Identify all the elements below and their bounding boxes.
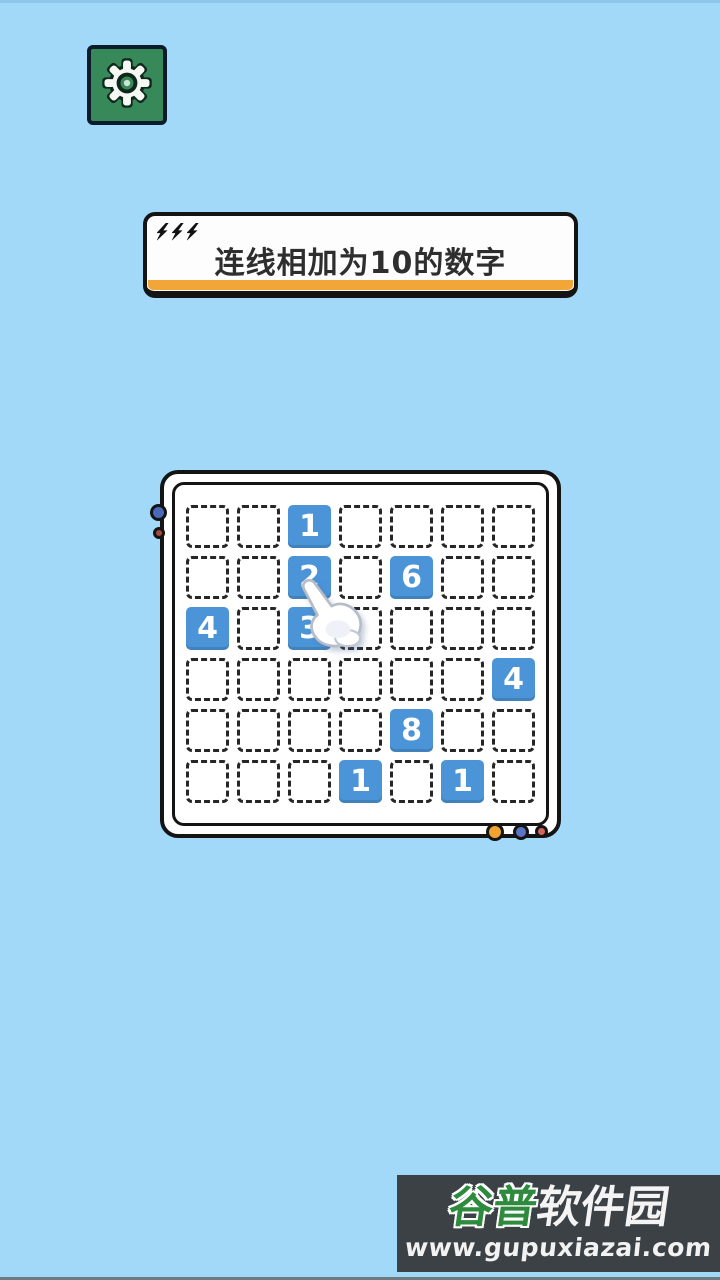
game-screen: 连线相加为10的数字 126434811 谷普软件园 www.gupuxiaza… <box>0 0 720 1280</box>
empty-cell <box>441 658 484 701</box>
empty-cell <box>237 760 280 803</box>
banner-accent-bar <box>148 280 573 290</box>
empty-cell <box>390 607 433 650</box>
empty-cell <box>390 505 433 548</box>
number-tile[interactable]: 1 <box>441 760 484 803</box>
board-frame: 126434811 <box>172 482 549 826</box>
puzzle-grid: 126434811 <box>186 505 535 803</box>
empty-cell <box>339 505 382 548</box>
empty-cell <box>186 709 229 752</box>
watermark-brand-green: 谷普 <box>445 1182 540 1233</box>
empty-cell <box>339 607 382 650</box>
empty-cell <box>288 658 331 701</box>
watermark-url: www.gupuxiazai.com <box>404 1233 714 1262</box>
number-tile[interactable]: 3 <box>288 607 331 650</box>
number-tile[interactable]: 1 <box>339 760 382 803</box>
empty-cell <box>390 658 433 701</box>
empty-cell <box>237 607 280 650</box>
empty-cell <box>186 658 229 701</box>
empty-cell <box>441 607 484 650</box>
number-tile[interactable]: 2 <box>288 556 331 599</box>
gear-icon <box>100 56 154 114</box>
watermark-brand-white: 软件园 <box>533 1182 672 1233</box>
empty-cell <box>186 760 229 803</box>
empty-cell <box>492 709 535 752</box>
number-tile[interactable]: 4 <box>186 607 229 650</box>
number-tile[interactable]: 4 <box>492 658 535 701</box>
decor-dot-blue <box>150 504 167 521</box>
empty-cell <box>492 760 535 803</box>
empty-cell <box>441 709 484 752</box>
settings-button[interactable] <box>87 45 167 125</box>
empty-cell <box>441 505 484 548</box>
empty-cell <box>441 556 484 599</box>
watermark: 谷普软件园 www.gupuxiazai.com <box>397 1175 720 1272</box>
number-tile[interactable]: 1 <box>288 505 331 548</box>
empty-cell <box>288 709 331 752</box>
level-goal-title: 连线相加为10的数字 <box>147 238 574 282</box>
empty-cell <box>390 760 433 803</box>
empty-cell <box>492 505 535 548</box>
level-banner: 连线相加为10的数字 <box>143 212 578 298</box>
empty-cell <box>186 505 229 548</box>
empty-cell <box>237 658 280 701</box>
empty-cell <box>237 556 280 599</box>
decor-dot-red <box>535 825 548 838</box>
decor-dot-orange <box>486 823 504 841</box>
watermark-brand: 谷普软件园 <box>445 1185 671 1231</box>
game-board: 126434811 <box>160 470 561 838</box>
empty-cell <box>237 505 280 548</box>
empty-cell <box>492 556 535 599</box>
decor-dot-blue <box>513 824 529 840</box>
empty-cell <box>492 607 535 650</box>
empty-cell <box>339 658 382 701</box>
empty-cell <box>339 709 382 752</box>
decor-dot-red <box>153 527 165 539</box>
number-tile[interactable]: 8 <box>390 709 433 752</box>
empty-cell <box>186 556 229 599</box>
empty-cell <box>339 556 382 599</box>
empty-cell <box>288 760 331 803</box>
empty-cell <box>237 709 280 752</box>
number-tile[interactable]: 6 <box>390 556 433 599</box>
